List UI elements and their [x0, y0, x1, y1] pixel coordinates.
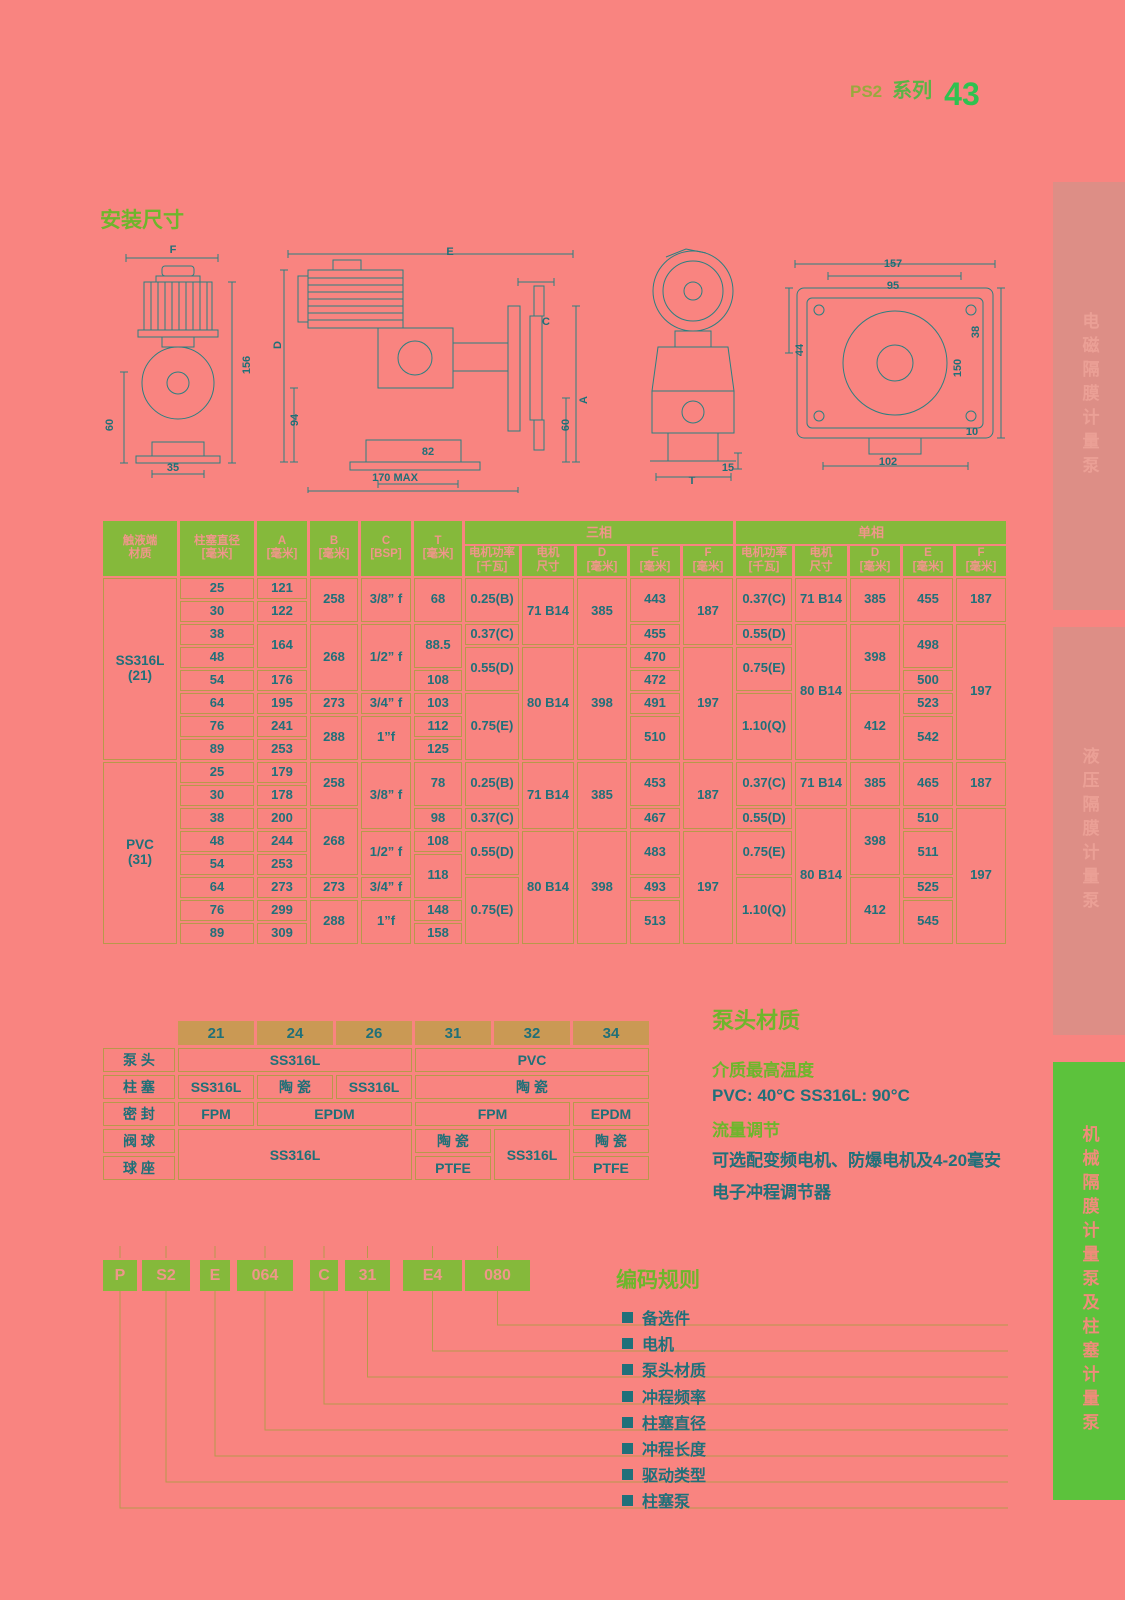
dim-col-header: T[毫米] — [414, 521, 462, 576]
dim-value-cell: 71 B14 — [795, 578, 847, 622]
series-word: 系列 — [892, 80, 932, 102]
dim-value-cell: 1”f — [361, 716, 411, 760]
material-value-cell: PTFE — [573, 1156, 649, 1180]
dim-value-cell: 385 — [850, 762, 900, 806]
dim-col-header: E[毫米] — [630, 546, 680, 576]
material-col-header: 32 — [494, 1021, 570, 1045]
dim-value-cell: 398 — [850, 808, 900, 875]
corner-blank — [103, 1021, 175, 1045]
page-number: 43 — [944, 76, 980, 112]
flow-adjust-title: 流量调节 — [712, 1116, 780, 1141]
material-value-cell: 陶 瓷 — [573, 1129, 649, 1153]
dim-value-cell: 542 — [903, 716, 953, 760]
code-box-080: 080 — [465, 1260, 530, 1291]
code-label-text: 备选件 — [642, 1305, 690, 1329]
material-row-label: 阀 球 — [103, 1129, 175, 1153]
dim-value-cell: 187 — [956, 762, 1006, 806]
square-bullet-icon — [622, 1417, 633, 1428]
material-value-cell: 陶 瓷 — [415, 1129, 491, 1153]
dim-value-cell: 68 — [414, 578, 462, 622]
dim-value-cell: 122 — [257, 601, 307, 622]
dim-col-header: 电机功率[千瓦] — [736, 546, 792, 576]
dim-value-cell: 493 — [630, 877, 680, 898]
code-label: 冲程频率 — [622, 1384, 706, 1408]
dim-value-cell: 64 — [180, 693, 254, 714]
dimension-label: 35 — [167, 462, 179, 474]
dimension-label: 82 — [422, 446, 434, 458]
dim-table-row: SS316L (21)251212583/8” f680.25(B)71 B14… — [103, 578, 1006, 599]
series-code: PS2 — [850, 82, 882, 101]
dim-value-cell: 545 — [903, 900, 953, 944]
dim-value-cell: 412 — [850, 693, 900, 760]
code-label-text: 电机 — [642, 1331, 674, 1355]
dim-value-cell: 253 — [257, 854, 307, 875]
dim-value-cell: 195 — [257, 693, 307, 714]
install-dimensions-title: 安装尺寸 — [100, 204, 184, 234]
dim-value-cell: 54 — [180, 854, 254, 875]
dim-value-cell: 38 — [180, 808, 254, 829]
max-temp-title: 介质最高温度 — [712, 1056, 814, 1081]
code-box-064: 064 — [237, 1260, 293, 1291]
dim-value-cell: 80 B14 — [795, 624, 847, 760]
dim-value-cell: 241 — [257, 716, 307, 737]
code-box-E4: E4 — [403, 1260, 462, 1291]
dim-value-cell: 299 — [257, 900, 307, 921]
dim-value-cell: 0.55(D) — [465, 647, 519, 691]
dim-value-cell: 309 — [257, 923, 307, 944]
material-value-cell: FPM — [415, 1102, 570, 1126]
material-value-cell: SS316L — [494, 1129, 570, 1180]
code-label: 电机 — [622, 1331, 674, 1355]
material-cell: SS316L (21) — [103, 578, 177, 760]
dim-value-cell: 268 — [310, 808, 358, 875]
dim-col-header: 电机尺寸 — [522, 546, 574, 576]
dimension-label: T — [689, 475, 696, 487]
dim-value-cell: 511 — [903, 831, 953, 875]
dimension-label: C — [542, 316, 550, 328]
dim-value-cell: 176 — [257, 670, 307, 691]
material-value-cell: EPDM — [257, 1102, 412, 1126]
dim-value-cell: 398 — [577, 647, 627, 760]
dim-col-header: 电机功率[千瓦] — [465, 546, 519, 576]
dim-value-cell: 0.37(C) — [736, 762, 792, 806]
dim-value-cell: 125 — [414, 739, 462, 760]
dim-value-cell: 0.75(E) — [465, 693, 519, 760]
square-bullet-icon — [622, 1338, 633, 1349]
dimension-label: 38 — [970, 326, 982, 338]
dim-col-header: D[毫米] — [850, 546, 900, 576]
page-header: PS2系列43 — [850, 74, 980, 113]
dim-value-cell: 467 — [630, 808, 680, 829]
code-box-C: C — [310, 1260, 338, 1291]
dim-value-cell: 398 — [850, 624, 900, 691]
dim-value-cell: 0.37(C) — [465, 808, 519, 829]
material-table-row: 柱 塞SS316L陶 瓷SS316L陶 瓷 — [103, 1075, 649, 1099]
dim-col-header: 电机尺寸 — [795, 546, 847, 576]
dim-value-cell: 510 — [903, 808, 953, 829]
dimension-label: 15 — [722, 462, 734, 474]
max-temp-values: PVC: 40°C SS316L: 90°C — [712, 1086, 910, 1106]
dim-value-cell: 25 — [180, 762, 254, 783]
dim-value-cell: 0.55(D) — [736, 808, 792, 829]
dim-value-cell: 3/8” f — [361, 762, 411, 829]
dim-value-cell: 197 — [683, 647, 733, 760]
dim-value-cell: 148 — [414, 900, 462, 921]
dim-value-cell: 71 B14 — [522, 578, 574, 645]
code-label-text: 泵头材质 — [642, 1357, 706, 1381]
dim-value-cell: 523 — [903, 693, 953, 714]
dim-value-cell: 179 — [257, 762, 307, 783]
sidebar-tab-label: 电磁隔膜计量泵 — [1077, 312, 1102, 480]
material-row-label: 密 封 — [103, 1102, 175, 1126]
material-row-label: 球 座 — [103, 1156, 175, 1180]
sidebar-tab-label: 机械隔膜计量泵及柱塞计量泵 — [1077, 1125, 1102, 1437]
material-value-cell: 陶 瓷 — [257, 1075, 333, 1099]
dim-value-cell: 3/8” f — [361, 578, 411, 622]
dim-value-cell: 121 — [257, 578, 307, 599]
dim-value-cell: 0.55(D) — [736, 624, 792, 645]
dim-value-cell: 118 — [414, 854, 462, 898]
dim-value-cell: 498 — [903, 624, 953, 668]
dim-value-cell: 385 — [850, 578, 900, 622]
catalog-page: PS2系列43 电磁隔膜计量泵 液压隔膜计量泵 机械隔膜计量泵及柱塞计量泵 安装… — [0, 0, 1125, 1600]
dim-value-cell: 491 — [630, 693, 680, 714]
material-value-cell: SS316L — [336, 1075, 412, 1099]
material-col-header: 26 — [336, 1021, 412, 1045]
dim-value-cell: 89 — [180, 923, 254, 944]
code-label: 泵头材质 — [622, 1357, 706, 1381]
dimension-label: E — [446, 246, 453, 258]
dimension-label: 10 — [966, 426, 978, 438]
dim-value-cell: 0.55(D) — [465, 831, 519, 875]
dim-value-cell: 500 — [903, 670, 953, 691]
flow-adjust-line1: 可选配变频电机、防爆电机及4-20毫安 — [712, 1146, 1001, 1171]
sidebar-tab-solenoid-pump: 电磁隔膜计量泵 — [1053, 182, 1125, 610]
material-col-header: 21 — [178, 1021, 254, 1045]
dim-value-cell: 455 — [903, 578, 953, 622]
dim-value-cell: 3/4” f — [361, 693, 411, 714]
dim-col-header: F[毫米] — [956, 546, 1006, 576]
dim-value-cell: 98 — [414, 808, 462, 829]
material-value-cell: PTFE — [415, 1156, 491, 1180]
dim-value-cell: 80 B14 — [522, 831, 574, 944]
dim-value-cell: 80 B14 — [522, 647, 574, 760]
sidebar-tab-mechanical-pump-active: 机械隔膜计量泵及柱塞计量泵 — [1053, 1062, 1125, 1500]
dim-value-cell: 288 — [310, 716, 358, 760]
dim-value-cell: 164 — [257, 624, 307, 668]
dim-value-cell: 470 — [630, 647, 680, 668]
dimension-label: 94 — [289, 414, 301, 426]
square-bullet-icon — [622, 1312, 633, 1323]
dimension-label: 60 — [104, 419, 116, 431]
dim-value-cell: 71 B14 — [795, 762, 847, 806]
material-value-cell: 陶 瓷 — [415, 1075, 649, 1099]
dim-value-cell: 197 — [683, 831, 733, 944]
sidebar-tab-hydraulic-pump: 液压隔膜计量泵 — [1053, 627, 1125, 1035]
square-bullet-icon — [622, 1391, 633, 1402]
material-table-row: 泵 头SS316LPVC — [103, 1048, 649, 1072]
square-bullet-icon — [622, 1495, 633, 1506]
dim-value-cell: 258 — [310, 762, 358, 806]
dimension-label: 156 — [241, 356, 253, 374]
dim-group-header: 单相 — [736, 521, 1006, 544]
code-label-text: 冲程长度 — [642, 1436, 706, 1460]
dim-value-cell: 76 — [180, 716, 254, 737]
dim-value-cell: 268 — [310, 624, 358, 691]
dim-value-cell: 1/2” f — [361, 624, 411, 691]
dim-value-cell: 483 — [630, 831, 680, 875]
dim-value-cell: 0.75(E) — [736, 647, 792, 691]
dim-value-cell: 443 — [630, 578, 680, 622]
dimension-table: 触液端材质柱塞直径[毫米]A[毫米]B[毫米]C[BSP]T[毫米]三相单相电机… — [100, 519, 1009, 946]
pump-head-material-table: 212426313234泵 头SS316LPVC柱 塞SS316L陶 瓷SS31… — [100, 1018, 652, 1183]
technical-drawing-rear-view — [636, 243, 751, 493]
dim-value-cell: 48 — [180, 647, 254, 668]
material-col-header: 31 — [415, 1021, 491, 1045]
dim-value-cell: 0.25(B) — [465, 578, 519, 622]
material-row-label: 柱 塞 — [103, 1075, 175, 1099]
dim-value-cell: 385 — [577, 578, 627, 645]
dim-value-cell: 30 — [180, 601, 254, 622]
dimension-label: 102 — [879, 456, 897, 468]
code-label: 驱动类型 — [622, 1462, 706, 1486]
dim-value-cell: 78 — [414, 762, 462, 806]
code-box-S2: S2 — [142, 1260, 190, 1291]
code-box-P: P — [103, 1260, 137, 1291]
dim-value-cell: 253 — [257, 739, 307, 760]
dim-col-header: A[毫米] — [257, 521, 307, 576]
dim-value-cell: 0.25(B) — [465, 762, 519, 806]
code-label-text: 柱塞直径 — [642, 1410, 706, 1434]
dim-value-cell: 412 — [850, 877, 900, 944]
dim-value-cell: 76 — [180, 900, 254, 921]
technical-drawing-front-view — [118, 252, 240, 487]
dim-value-cell: 0.37(C) — [465, 624, 519, 645]
code-label: 柱塞直径 — [622, 1410, 706, 1434]
material-value-cell: EPDM — [573, 1102, 649, 1126]
dim-value-cell: 513 — [630, 900, 680, 944]
dimension-label: 170 MAX — [372, 472, 418, 484]
dim-value-cell: 1.10(Q) — [736, 877, 792, 944]
material-value-cell: FPM — [178, 1102, 254, 1126]
dim-col-header: E[毫米] — [903, 546, 953, 576]
connector-line — [498, 1246, 1009, 1325]
technical-drawing-side-view — [278, 248, 583, 498]
dim-value-cell: 88.5 — [414, 624, 462, 668]
dim-value-cell: 288 — [310, 900, 358, 944]
dim-value-cell: 0.75(E) — [465, 877, 519, 944]
dim-col-header: F[毫米] — [683, 546, 733, 576]
dim-value-cell: 112 — [414, 716, 462, 737]
dimension-label: D — [272, 341, 284, 349]
dim-col-header: 触液端材质 — [103, 521, 177, 576]
dim-value-cell: 453 — [630, 762, 680, 806]
dim-value-cell: 71 B14 — [522, 762, 574, 829]
dimension-label: A — [578, 396, 590, 404]
dim-value-cell: 178 — [257, 785, 307, 806]
sidebar-tab-label: 液压隔膜计量泵 — [1077, 747, 1102, 915]
dim-value-cell: 187 — [683, 762, 733, 829]
dim-value-cell: 398 — [577, 831, 627, 944]
code-box-E: E — [200, 1260, 230, 1291]
dim-value-cell: 455 — [630, 624, 680, 645]
dimension-table-body: SS316L (21)251212583/8” f680.25(B)71 B14… — [103, 578, 1006, 944]
material-col-header: 34 — [573, 1021, 649, 1045]
dim-value-cell: 510 — [630, 716, 680, 760]
dim-value-cell: 3/4” f — [361, 877, 411, 898]
material-value-cell: SS316L — [178, 1075, 254, 1099]
dim-col-header: B[毫米] — [310, 521, 358, 576]
dim-value-cell: 273 — [310, 693, 358, 714]
dim-value-cell: 465 — [903, 762, 953, 806]
dim-col-header: 柱塞直径[毫米] — [180, 521, 254, 576]
dim-col-header: C[BSP] — [361, 521, 411, 576]
square-bullet-icon — [622, 1443, 633, 1454]
dimension-label: 95 — [887, 280, 899, 292]
dim-value-cell: 108 — [414, 670, 462, 691]
code-box-31: 31 — [345, 1260, 390, 1291]
code-label: 冲程长度 — [622, 1436, 706, 1460]
dim-value-cell: 1.10(Q) — [736, 693, 792, 760]
dim-value-cell: 80 B14 — [795, 808, 847, 944]
material-value-cell: SS316L — [178, 1129, 412, 1180]
dim-group-header: 三相 — [465, 521, 733, 544]
dim-value-cell: 1/2” f — [361, 831, 411, 875]
coding-rule-title: 编码规则 — [616, 1264, 700, 1294]
dim-value-cell: 273 — [310, 877, 358, 898]
dimension-table-head: 触液端材质柱塞直径[毫米]A[毫米]B[毫米]C[BSP]T[毫米]三相单相电机… — [103, 521, 1006, 576]
dim-value-cell: 472 — [630, 670, 680, 691]
dim-value-cell: 103 — [414, 693, 462, 714]
dimension-label: F — [170, 244, 177, 256]
dim-value-cell: 89 — [180, 739, 254, 760]
dim-value-cell: 0.75(E) — [736, 831, 792, 875]
material-value-cell: PVC — [415, 1048, 649, 1072]
dimension-label: 150 — [952, 359, 964, 377]
code-label-text: 驱动类型 — [642, 1462, 706, 1486]
dim-value-cell: 108 — [414, 831, 462, 852]
dim-value-cell: 200 — [257, 808, 307, 829]
code-label: 柱塞泵 — [622, 1488, 690, 1512]
flow-adjust-line2: 电子冲程调节器 — [712, 1178, 831, 1203]
material-cell: PVC (31) — [103, 762, 177, 944]
dim-value-cell: 187 — [956, 578, 1006, 622]
dim-value-cell: 385 — [577, 762, 627, 829]
dim-value-cell: 273 — [257, 877, 307, 898]
dim-col-header: D[毫米] — [577, 546, 627, 576]
dim-value-cell: 64 — [180, 877, 254, 898]
dim-value-cell: 244 — [257, 831, 307, 852]
dimension-label: 157 — [884, 258, 902, 270]
dim-value-cell: 525 — [903, 877, 953, 898]
dim-table-row: PVC (31)251792583/8” f780.25(B)71 B14385… — [103, 762, 1006, 783]
material-value-cell: SS316L — [178, 1048, 412, 1072]
dim-value-cell: 54 — [180, 670, 254, 691]
dim-value-cell: 158 — [414, 923, 462, 944]
material-table-row: 阀 球SS316L陶 瓷SS316L陶 瓷 — [103, 1129, 649, 1153]
pump-head-material-title: 泵头材质 — [712, 1003, 800, 1035]
dimension-label: 60 — [560, 419, 572, 431]
dim-value-cell: 197 — [956, 624, 1006, 760]
dim-value-cell: 48 — [180, 831, 254, 852]
square-bullet-icon — [622, 1364, 633, 1375]
dim-value-cell: 0.37(C) — [736, 578, 792, 622]
material-row-label: 泵 头 — [103, 1048, 175, 1072]
dim-value-cell: 30 — [180, 785, 254, 806]
material-col-header: 24 — [257, 1021, 333, 1045]
code-label-text: 冲程频率 — [642, 1384, 706, 1408]
dim-value-cell: 197 — [956, 808, 1006, 944]
dim-value-cell: 25 — [180, 578, 254, 599]
dimension-label: 44 — [794, 344, 806, 356]
dim-value-cell: 187 — [683, 578, 733, 645]
code-label: 备选件 — [622, 1305, 690, 1329]
dim-value-cell: 38 — [180, 624, 254, 645]
material-table-row: 密 封FPMEPDMFPMEPDM — [103, 1102, 649, 1126]
dim-value-cell: 258 — [310, 578, 358, 622]
dim-value-cell: 1”f — [361, 900, 411, 944]
square-bullet-icon — [622, 1469, 633, 1480]
code-label-text: 柱塞泵 — [642, 1488, 690, 1512]
